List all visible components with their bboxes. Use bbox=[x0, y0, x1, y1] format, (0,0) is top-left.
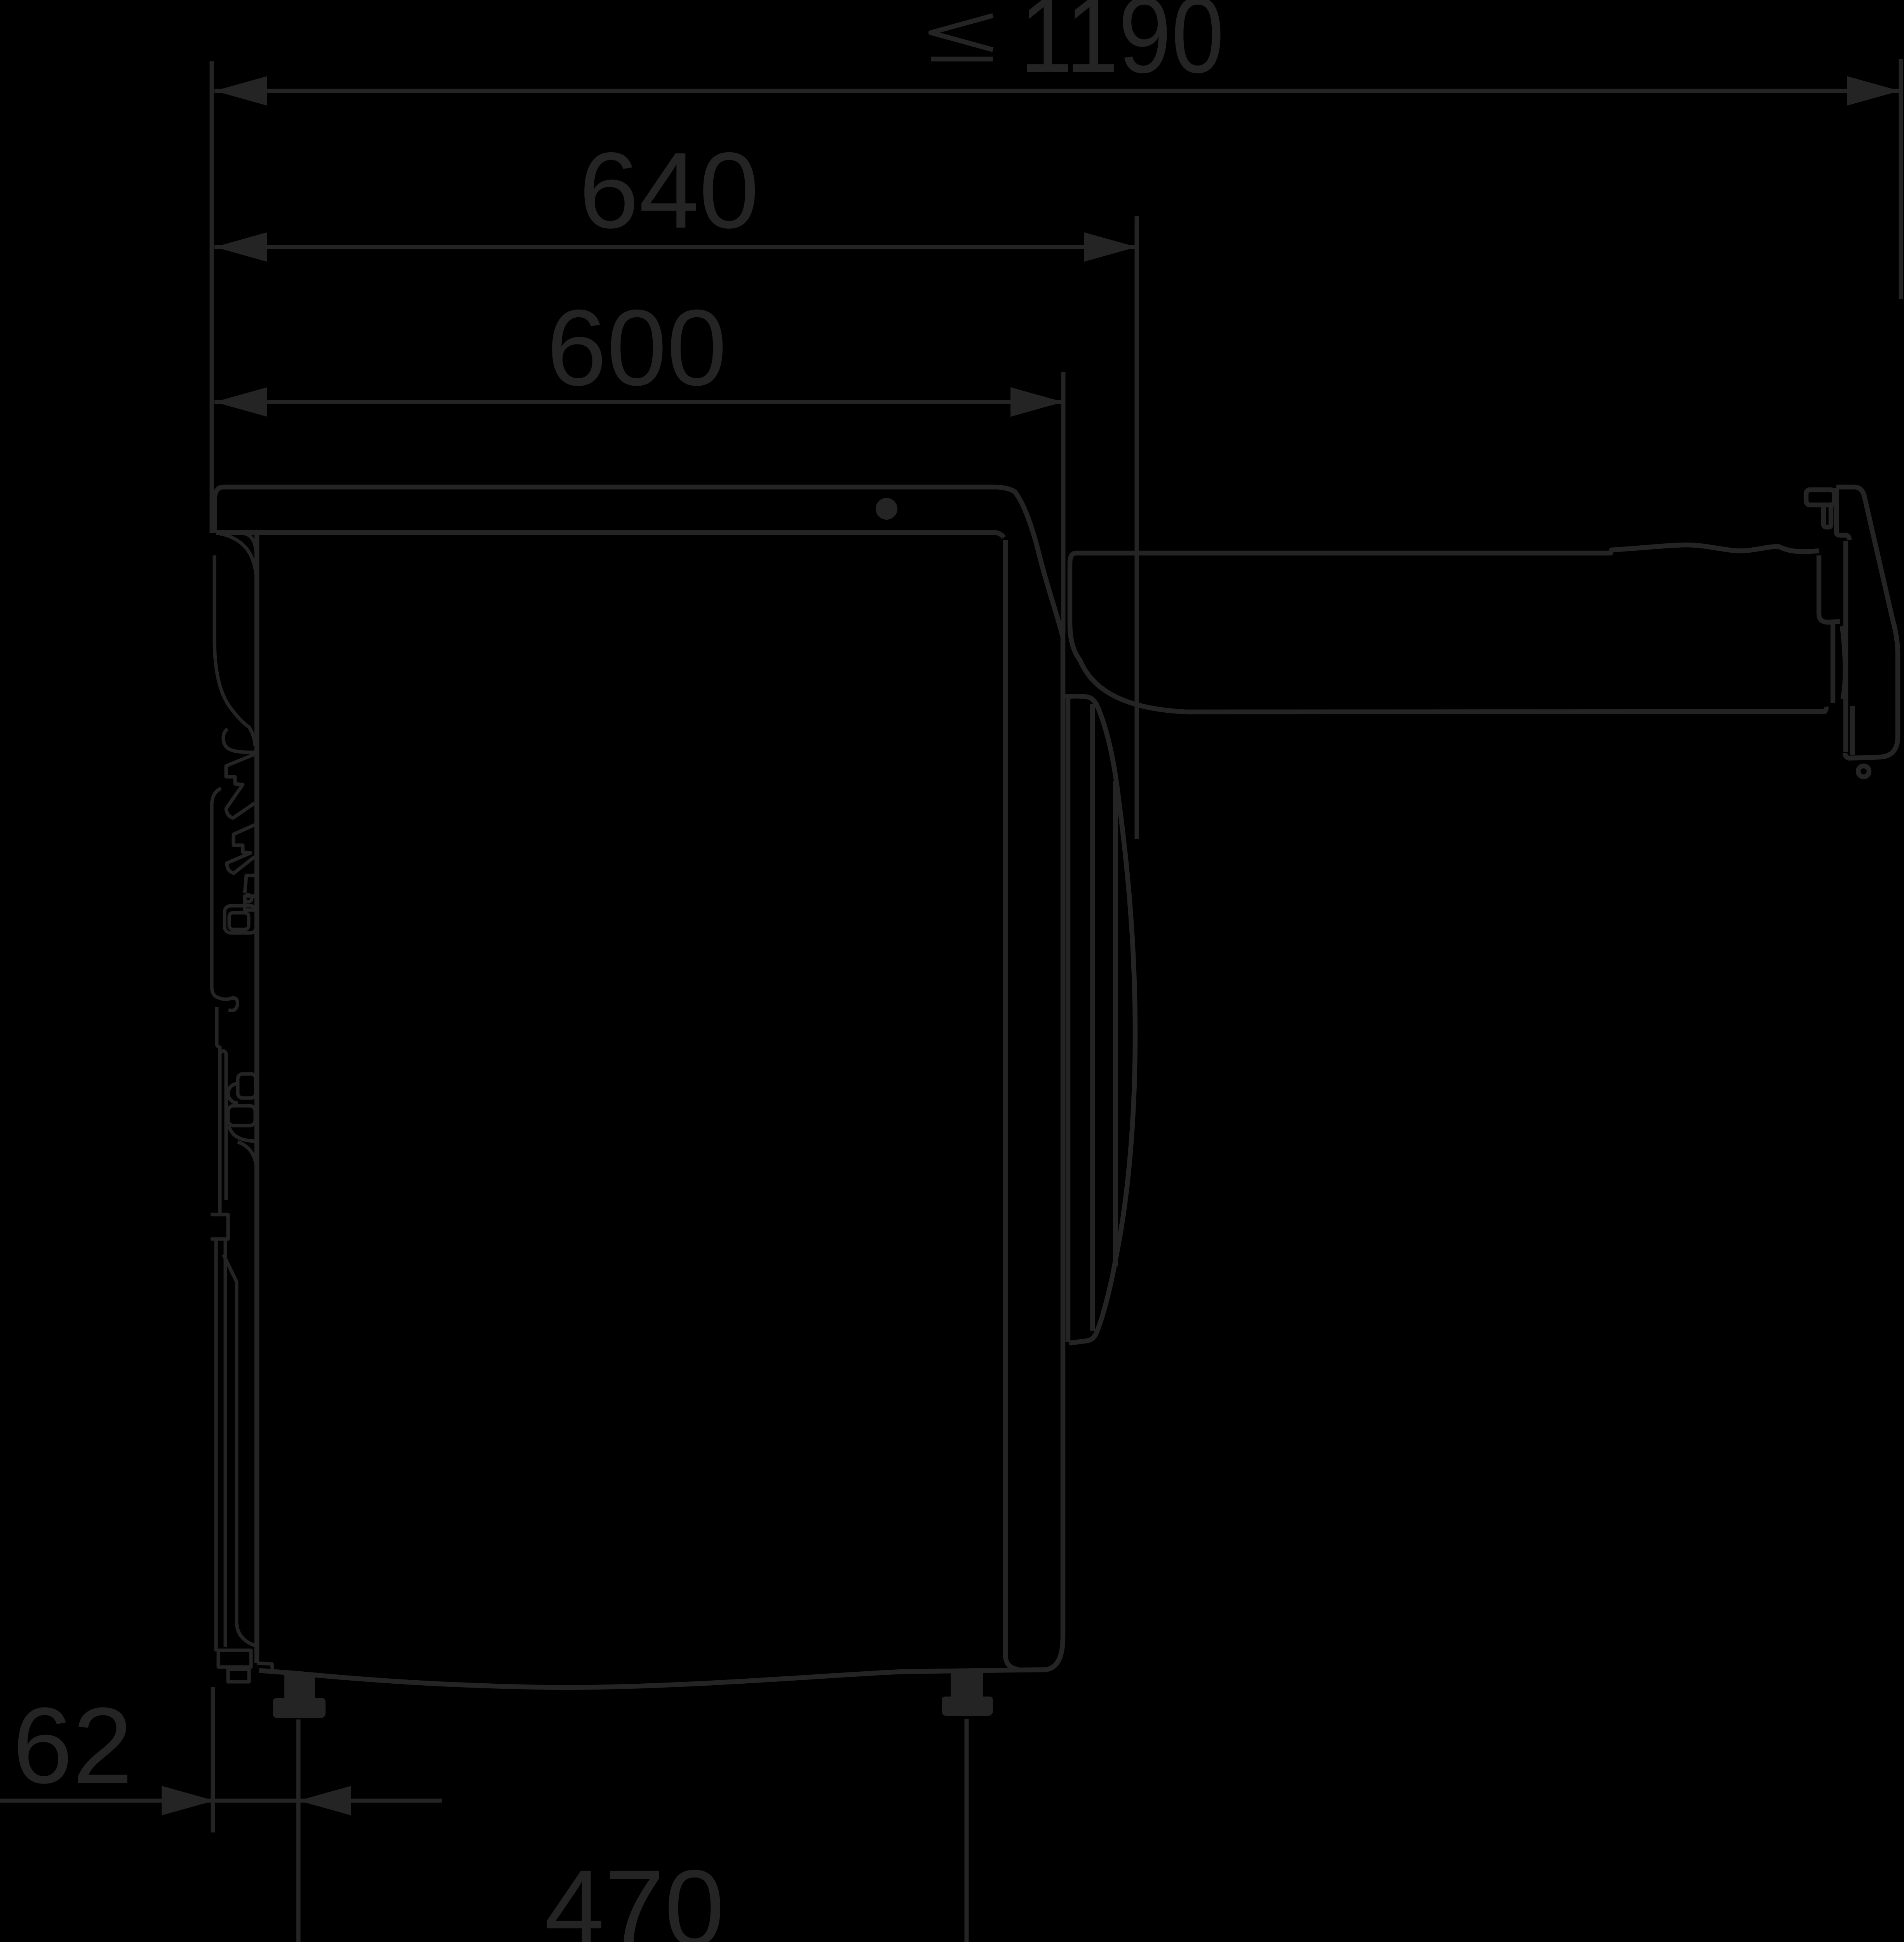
svg-text:62: 62 bbox=[12, 1685, 132, 1806]
svg-text:600: 600 bbox=[547, 287, 727, 408]
svg-text:1190: 1190 bbox=[1020, 0, 1224, 95]
svg-text:640: 640 bbox=[579, 130, 759, 251]
svg-text:470: 470 bbox=[544, 1847, 725, 1942]
